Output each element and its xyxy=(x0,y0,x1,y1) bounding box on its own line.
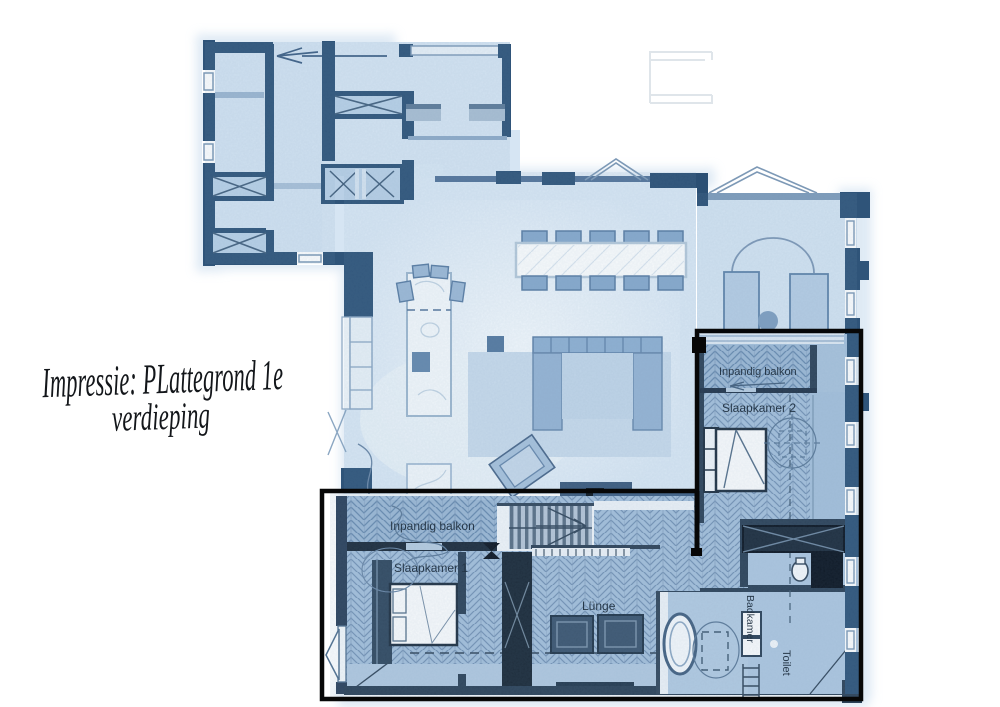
svg-text:verdieping: verdieping xyxy=(111,394,210,439)
